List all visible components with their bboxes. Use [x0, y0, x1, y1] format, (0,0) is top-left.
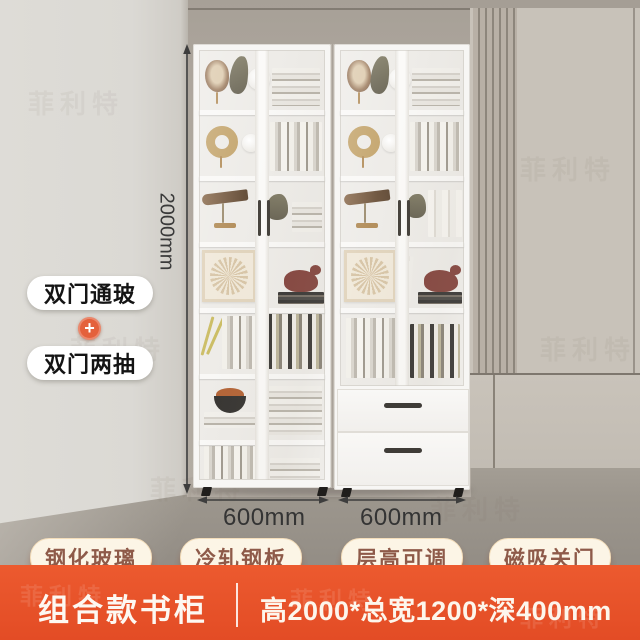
height-dimension-label: 2000mm: [155, 192, 178, 272]
config-label-top: 双门通玻: [27, 276, 153, 310]
width-dimension-label-left: 600mm: [223, 504, 303, 532]
width-dimension-label-right: 600mm: [360, 504, 440, 532]
footer-bar: 菲利特 菲利特 菲利特 组合款书柜 高2000*总宽1200*深400mm: [0, 565, 640, 640]
plus-icon: +: [78, 317, 101, 340]
product-title: 组合款书柜: [38, 585, 208, 630]
product-image: 菲利特 菲利特 菲利特 菲利特 菲利特 菲利特 菲利特 菲利特: [0, 0, 640, 640]
footer-divider: [236, 583, 238, 627]
product-spec: 高2000*总宽1200*深400mm: [260, 589, 612, 628]
config-label-bottom: 双门两抽: [27, 346, 153, 380]
